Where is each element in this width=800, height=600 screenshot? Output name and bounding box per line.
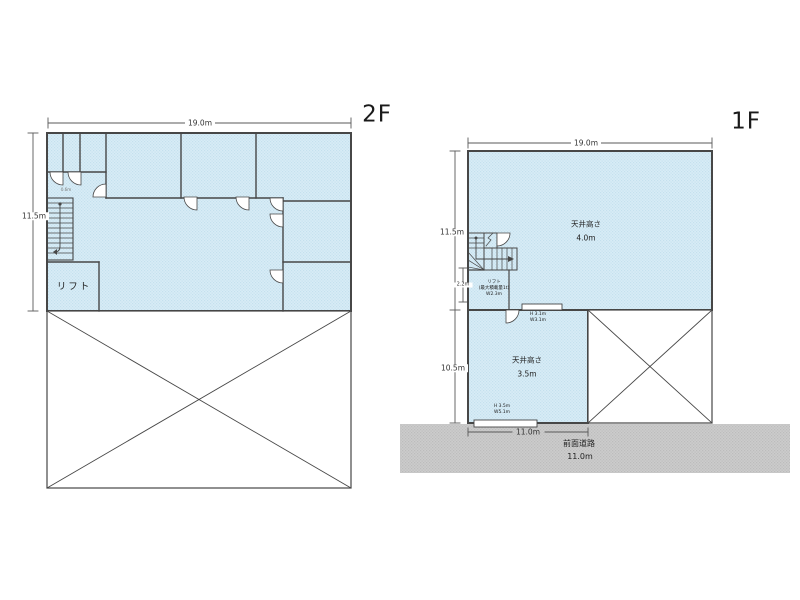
- 1f-ceiling-lower-value: 3.5m: [512, 370, 542, 378]
- 1f-opening-bottom-h: H 3.5m: [494, 405, 510, 410]
- 1f-stair-section-dim: 2.2m: [454, 283, 473, 288]
- 1f-height-dim-upper: 11.5m: [437, 228, 467, 236]
- 1f-ceiling-height-upper: 天井高さ 4.0m: [571, 221, 601, 248]
- 1f-opening-mid-h: H 3.1m: [530, 313, 546, 318]
- 1f-ceiling-upper-value: 4.0m: [571, 234, 601, 242]
- 1f-road-label: 前面道路: [563, 440, 595, 448]
- 1f-opening-mid-label: H 3.1m W3.1m: [530, 313, 546, 325]
- 1f-opening-mid-shutter: [522, 304, 562, 310]
- 1f-opening-bottom-label: H 3.5m W5.1m: [494, 405, 510, 417]
- 1f-lift-note-capacity: (最大積載量1t): [479, 287, 510, 292]
- 1f-lift-note: リフト (最大積載量1t) W2.3m: [479, 281, 510, 299]
- 1f-ceiling-lower-text: 天井高さ: [512, 357, 542, 365]
- 1f-ceiling-upper-text: 天井高さ: [571, 221, 601, 229]
- 1f-room-width-dim: 11.0m: [516, 428, 540, 436]
- 1f-floor-label: 1F: [731, 111, 761, 134]
- floorplan-page: 2F 19.0m 11.5m リフト 0.6m 1F 19.0m 11.5m 2…: [0, 0, 800, 600]
- 1f-opening-bottom-shutter: [474, 420, 537, 427]
- 1f-opening-bottom-w: W5.1m: [494, 411, 510, 416]
- 2f-height-dim: 11.5m: [19, 212, 49, 220]
- 1f-lift-note-name: リフト: [479, 281, 510, 286]
- 1f-lift-note-width: W2.3m: [479, 293, 510, 298]
- 1f-front-road: [400, 424, 790, 473]
- 1f-opening-mid-w: W3.1m: [530, 319, 546, 324]
- 2f-stair-note: 0.6m: [61, 188, 71, 192]
- 1f-width-dim: 19.0m: [571, 139, 601, 147]
- floorplan-drawing: [0, 0, 800, 600]
- 1f-road-width: 11.0m: [567, 453, 593, 461]
- floorplan-1f: [400, 138, 790, 473]
- 1f-height-dim-lower: 10.5m: [438, 364, 468, 372]
- 2f-width-dim: 19.0m: [185, 119, 215, 127]
- 1f-ceiling-height-lower: 天井高さ 3.5m: [512, 357, 542, 384]
- 1f-void-box: [588, 310, 712, 423]
- 2f-floor-area: [47, 133, 351, 311]
- floorplan-2f: [28, 118, 351, 488]
- 2f-floor-label: 2F: [362, 104, 392, 127]
- 2f-void-box: [47, 311, 351, 488]
- 2f-lift-room-label: リフト: [57, 282, 92, 292]
